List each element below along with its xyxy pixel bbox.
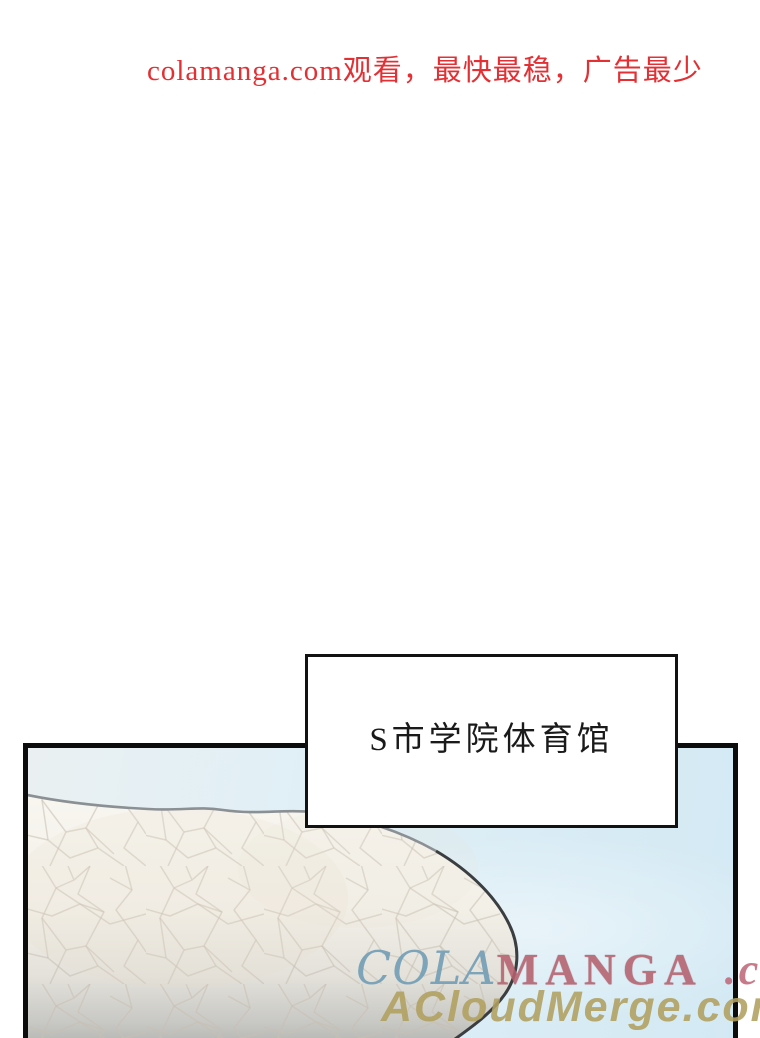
ad-banner-text: colamanga.com观看，最快最稳，广告最少: [147, 47, 703, 89]
caption-text: S市学院体育馆: [369, 712, 613, 760]
manga-page: colamanga.com观看，最快最稳，广告最少: [0, 0, 760, 1038]
watermark-acloudmerge: ACloudMerge.com: [381, 983, 760, 1032]
caption-box: S市学院体育馆: [305, 654, 678, 828]
